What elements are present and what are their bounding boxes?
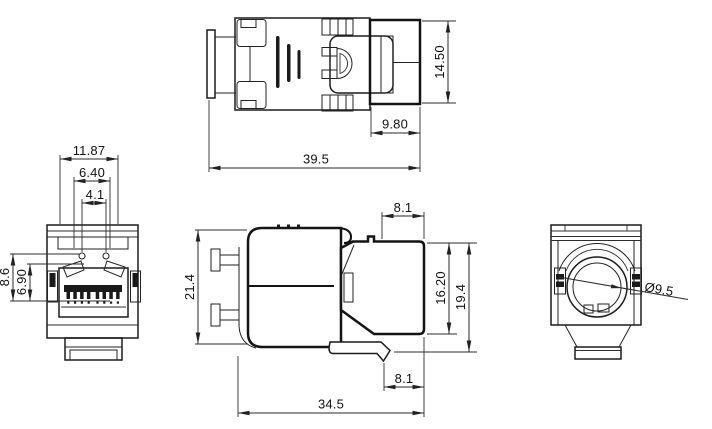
top-view-plug-d-shape [337,49,352,79]
rear-view-dimensions: Ø9.5 [559,277,688,300]
dim-side-nose-depth-bottom-label: 8.1 [395,371,414,386]
dim-front-pin-pitch-label: 4.1 [86,187,105,202]
top-view-body [235,18,370,110]
dim-front-width-label: 11.87 [73,143,106,158]
drawing-sheet: 14.50 9.80 39.5 [0,0,712,429]
dim-front-opening-width-label: 6.40 [79,165,105,180]
keystone-jack-technical-drawing: 14.50 9.80 39.5 [0,0,712,429]
dim-rear-cable-hole-diameter-label: Ø9.5 [643,279,674,299]
dim-top-overall-length-label: 39.5 [303,152,329,167]
rear-view-body [551,225,641,325]
dim-side-nose-depth-top-label: 8.1 [394,200,413,215]
side-view-wire-posts [211,249,239,326]
dim-front-inner-height-label: 6.90 [14,269,29,295]
top-view-flange [207,30,215,98]
side-view-dimensions: 8.1 21.4 16.20 19.4 8.1 34.5 [182,200,477,417]
dim-side-overall-length-label: 34.5 [318,397,344,412]
top-view [207,18,420,111]
dim-top-height-label: 14.50 [432,45,447,79]
front-view-bottom-tab [65,338,122,360]
dim-front-opening-height-label: 8.6 [0,268,12,287]
front-view-body [47,225,138,338]
rear-view [551,225,642,359]
top-view-vent-slots [276,36,301,88]
top-view-latch-arch [330,36,393,93]
dim-side-face-height-label: 16.20 [433,271,448,305]
front-view-pin-hole-right [103,253,109,259]
dim-top-rear-depth-label: 9.80 [382,117,408,132]
dim-side-overall-height-label: 19.4 [453,284,468,310]
rear-view-bottom-tab [575,347,621,359]
side-view-body [248,228,341,347]
side-view [211,225,424,362]
front-view [47,225,141,360]
dim-side-body-height-label: 21.4 [182,274,197,300]
front-view-pin-hole-left [79,253,85,259]
side-view-latch-arm [329,342,390,361]
